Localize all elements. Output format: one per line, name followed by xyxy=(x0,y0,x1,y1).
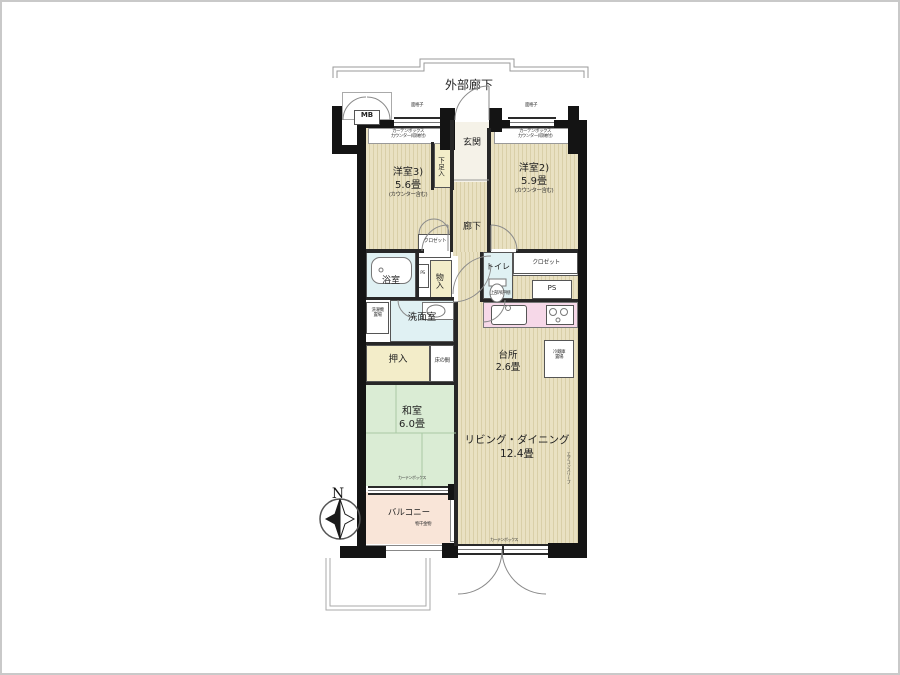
japanese-room-label: 和室 6.0畳 xyxy=(374,405,450,431)
western2-name: 洋室2) xyxy=(492,162,576,175)
japanese-size: 6.0畳 xyxy=(374,418,450,431)
hallway-label: 廊下 xyxy=(452,222,492,234)
closet-west2-label: クロゼット xyxy=(520,259,572,266)
bath-label: 浴室 xyxy=(368,276,414,288)
kitchen-size: 2.6畳 xyxy=(484,362,532,374)
closet-hall-label: クロゼット xyxy=(416,238,454,244)
tatami-lines xyxy=(366,385,456,486)
window-grille-left-label: 面格子 xyxy=(402,103,432,108)
kitchen-name: 台所 xyxy=(484,350,532,362)
western3-note: (カウンター含む) xyxy=(368,192,448,199)
japanese-name: 和室 xyxy=(374,405,450,418)
shoebox-label: 下足入 xyxy=(436,148,444,186)
plan-linework: N xyxy=(2,2,900,675)
western2-size: 5.9畳 xyxy=(492,175,576,188)
compass: N xyxy=(320,486,360,539)
living-size: 12.4畳 xyxy=(452,448,582,462)
balcony-label: バルコニー xyxy=(376,508,442,519)
room-western2-label: 洋室2) 5.9畳 (カウンター含む) xyxy=(492,162,576,195)
curtainbox-living-label: カーテンボックス xyxy=(480,538,528,543)
fridge-space-label: 冷蔵庫 置場 xyxy=(544,350,574,361)
tokonoma-label: 床の間 xyxy=(426,358,458,365)
curtainbox-tatami-label: カーテンボックス xyxy=(390,476,434,481)
washroom-label: 洗面室 xyxy=(392,312,452,324)
ps-right-label: PS xyxy=(532,284,572,293)
storage-label: 物入 xyxy=(434,265,444,297)
floorplan-sheet: 外部廊下 カーテンボックス カウンター(収納付) カーテンボックス カウンター(… xyxy=(0,0,900,675)
window-grille-right-label: 面格子 xyxy=(516,103,546,108)
upper-cabinet-label: 上部吊戸棚 xyxy=(482,291,518,296)
lower-floor-outline xyxy=(326,558,430,610)
living-name: リビング・ダイニング xyxy=(452,434,582,448)
kitchen-label: 台所 2.6畳 xyxy=(484,350,532,375)
living-dining-label: リビング・ダイニング 12.4畳 xyxy=(452,434,582,461)
toilet-label: トイレ xyxy=(483,262,513,272)
corridor-outline xyxy=(333,59,588,78)
entrance-label: 玄関 xyxy=(454,138,490,150)
futon-closet-label: 押入 xyxy=(370,354,426,366)
washer-line2: 置場 xyxy=(366,313,389,318)
compass-north-label: N xyxy=(332,486,344,502)
fridge-line2: 置場 xyxy=(544,355,574,360)
ac-sleeve-label: エアコンスリーブ xyxy=(566,442,571,494)
western2-note: (カウンター含む) xyxy=(492,188,576,195)
ps-small-label: PS xyxy=(416,271,429,276)
washer-space-label: 洗濯機 置場 xyxy=(366,308,389,319)
balcony-note-label: 物干金物 xyxy=(406,522,440,527)
